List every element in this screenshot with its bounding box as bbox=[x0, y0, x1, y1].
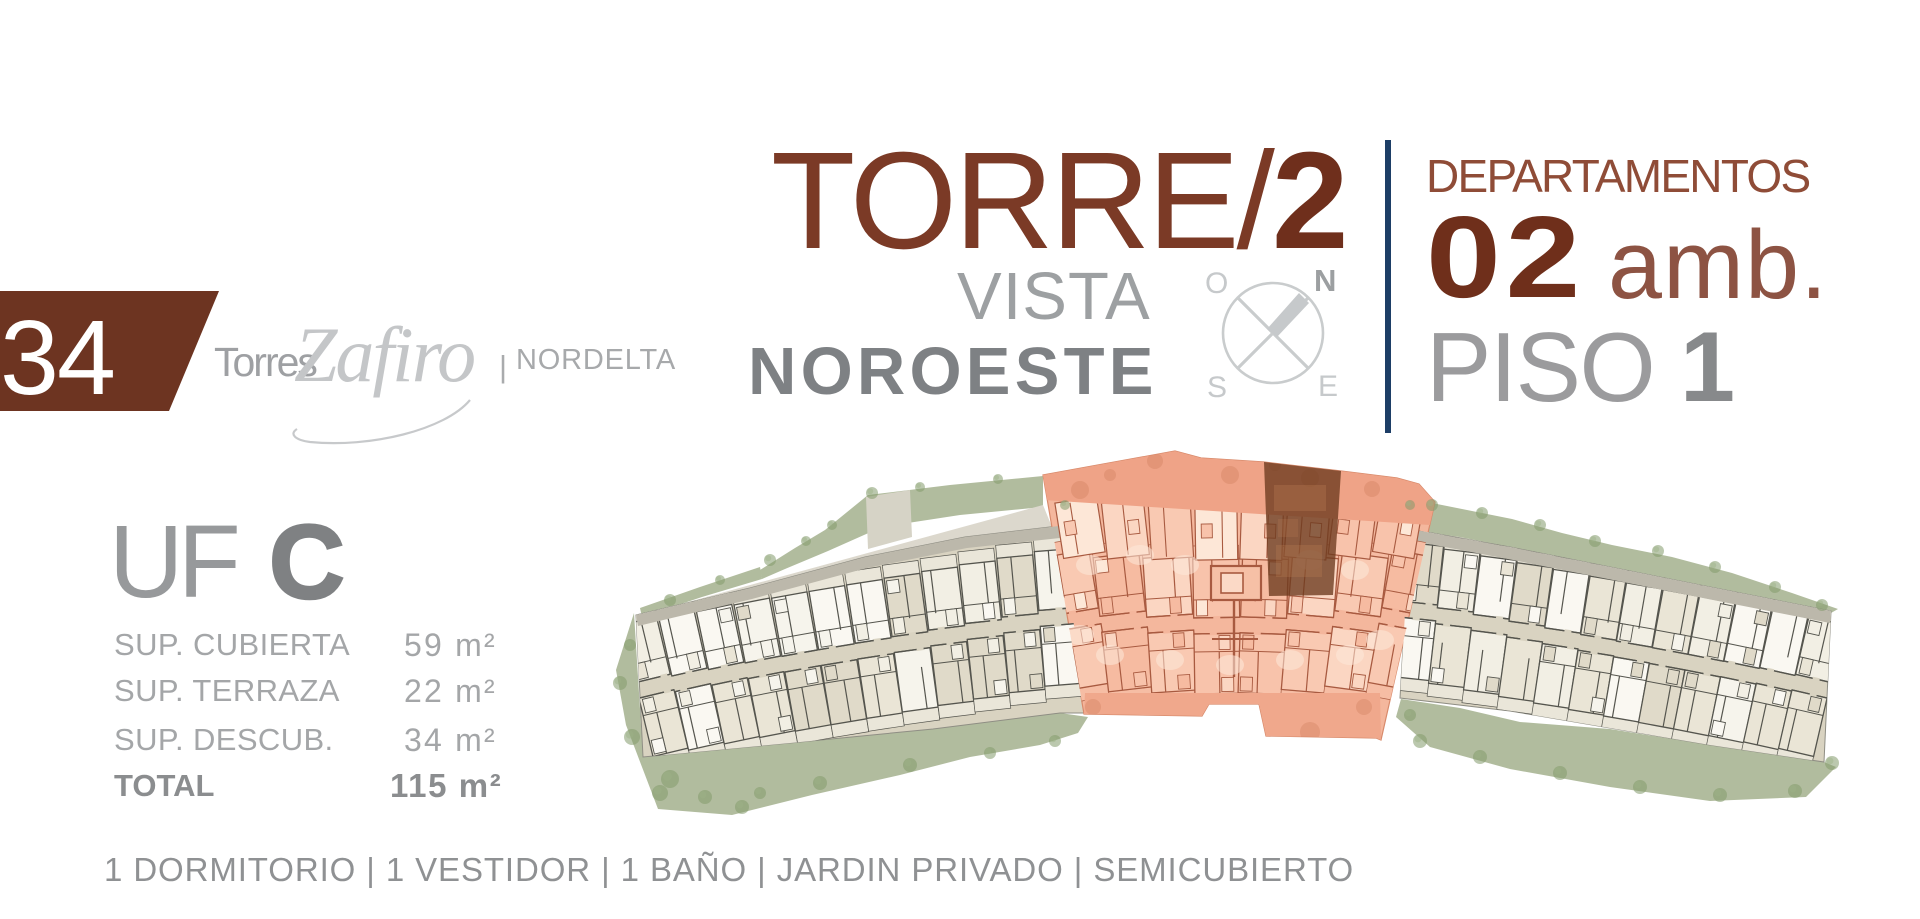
svg-text:E: E bbox=[1318, 370, 1338, 403]
svg-text:N: N bbox=[1314, 263, 1336, 298]
svg-text:O: O bbox=[1205, 267, 1228, 300]
svg-text:S: S bbox=[1207, 371, 1227, 404]
